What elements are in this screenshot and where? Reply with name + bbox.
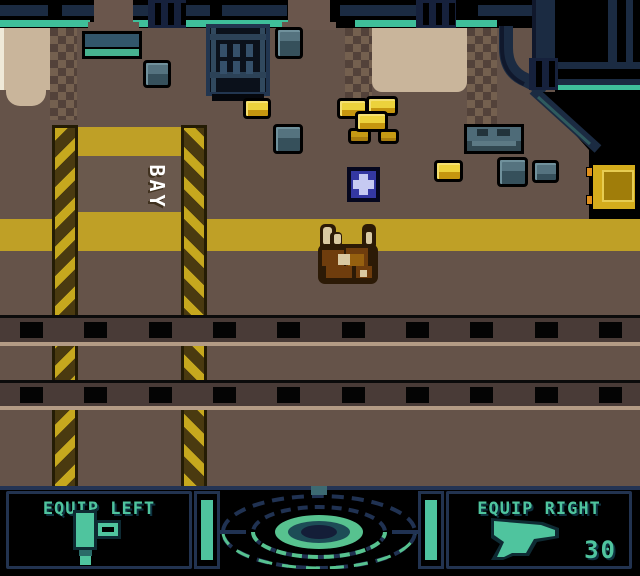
wall-panel: [82, 31, 142, 59]
right-status-bar-fill: [425, 500, 437, 560]
rail-track: [0, 315, 640, 346]
pipe-clamp: [148, 0, 186, 28]
pipe-segment: [62, 5, 95, 16]
yellow-crate: [243, 98, 271, 119]
game-screen: BAY: [0, 0, 640, 576]
track-sleeper: [277, 322, 300, 338]
track-band: [0, 318, 640, 342]
pistol-icon: [485, 514, 569, 560]
left-status-bar-fill: [201, 500, 213, 560]
playfield[interactable]: BAY: [0, 0, 640, 486]
wall-accent-stripe: [0, 20, 90, 27]
gate-machine: [206, 24, 270, 96]
gray-crate: [275, 27, 303, 59]
equip-left-panel: EQUIP LEFT: [6, 491, 192, 569]
hud-bottom-border: [0, 569, 640, 576]
pipe-segment: [0, 5, 48, 16]
hazard-pillar: [52, 125, 78, 486]
lit-floor-left: [4, 28, 50, 90]
track-sleeper: [213, 322, 236, 338]
pipe-segment: [478, 5, 532, 16]
pipe-clamp: [416, 0, 456, 28]
left-status-bar: [194, 491, 220, 569]
motion-tracker-radar: [220, 486, 418, 576]
track-sleeper: [20, 322, 43, 338]
pipe-segment: [340, 5, 420, 16]
ammo-count: 30: [584, 536, 617, 564]
track-sleeper: [277, 387, 300, 403]
hazard-pillar: [181, 125, 207, 486]
lit-floor-left-tongue: [6, 86, 46, 106]
gray-crate: [532, 160, 559, 183]
track-sleeper: [470, 387, 493, 403]
track-sleeper: [149, 322, 172, 338]
track-sleeper: [599, 322, 622, 338]
floor-dither: [345, 28, 372, 104]
console-machine: [464, 124, 524, 154]
medkit-pickup: [347, 167, 380, 202]
pipe-horizontal: [555, 62, 640, 69]
track-sleeper: [470, 322, 493, 338]
pipe-segment: [222, 5, 287, 16]
track-band: [0, 383, 640, 406]
pipe-vertical-thin: [608, 0, 617, 62]
floor-dither: [50, 28, 77, 120]
gray-crate: [273, 124, 303, 154]
track-sleeper: [535, 322, 558, 338]
lit-floor-mid: [372, 28, 467, 92]
track-sleeper: [84, 387, 107, 403]
bay-header-band: [77, 127, 182, 156]
yellow-crate: [434, 160, 463, 182]
wall-pillar-base: [88, 22, 139, 30]
player-creature-sprite: [310, 218, 390, 292]
hud-bar: EQUIP LEFT: [0, 486, 640, 576]
tool-icon: [65, 508, 127, 566]
gray-crate: [497, 157, 528, 187]
pipe-vertical-thin: [626, 0, 633, 62]
track-sleeper: [406, 322, 429, 338]
track-sleeper: [84, 322, 107, 338]
equip-right-panel: EQUIP RIGHT 30: [446, 491, 632, 569]
track-sleeper: [213, 387, 236, 403]
floor-dither: [467, 28, 497, 132]
track-sleeper: [599, 387, 622, 403]
gray-crate: [143, 60, 171, 88]
rail-track: [0, 380, 640, 410]
yellow_dark-crate: [378, 129, 399, 144]
track-sleeper: [20, 387, 43, 403]
right-status-bar: [418, 491, 444, 569]
cargo-cart: [590, 162, 638, 212]
bay-sign-label: BAY: [146, 157, 168, 217]
track-sleeper: [149, 387, 172, 403]
track-sleeper: [342, 322, 365, 338]
pipe-accent-stripe: [555, 85, 640, 90]
track-sleeper: [406, 387, 429, 403]
track-sleeper: [342, 387, 365, 403]
pipe-clamp: [529, 58, 558, 90]
track-sleeper: [535, 387, 558, 403]
